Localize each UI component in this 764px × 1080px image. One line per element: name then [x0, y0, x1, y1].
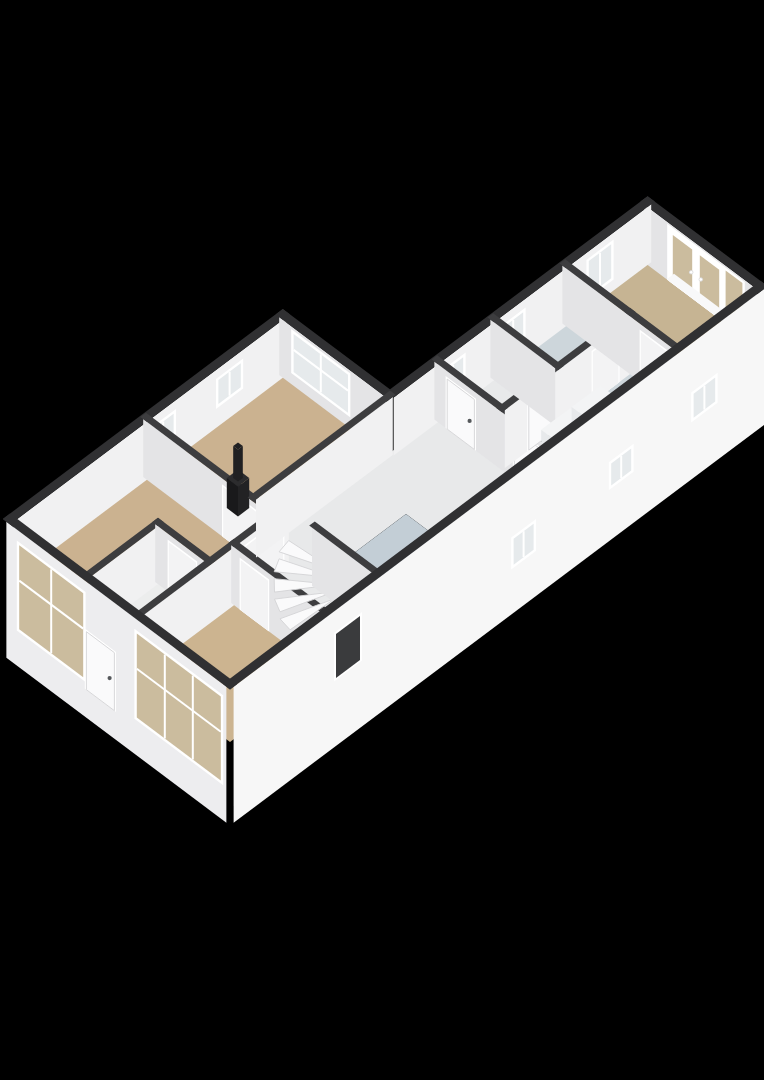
floorplan-3d-render [0, 0, 764, 1080]
stove-flue-pipe [233, 442, 243, 481]
floorplan-canvas [0, 0, 764, 1080]
